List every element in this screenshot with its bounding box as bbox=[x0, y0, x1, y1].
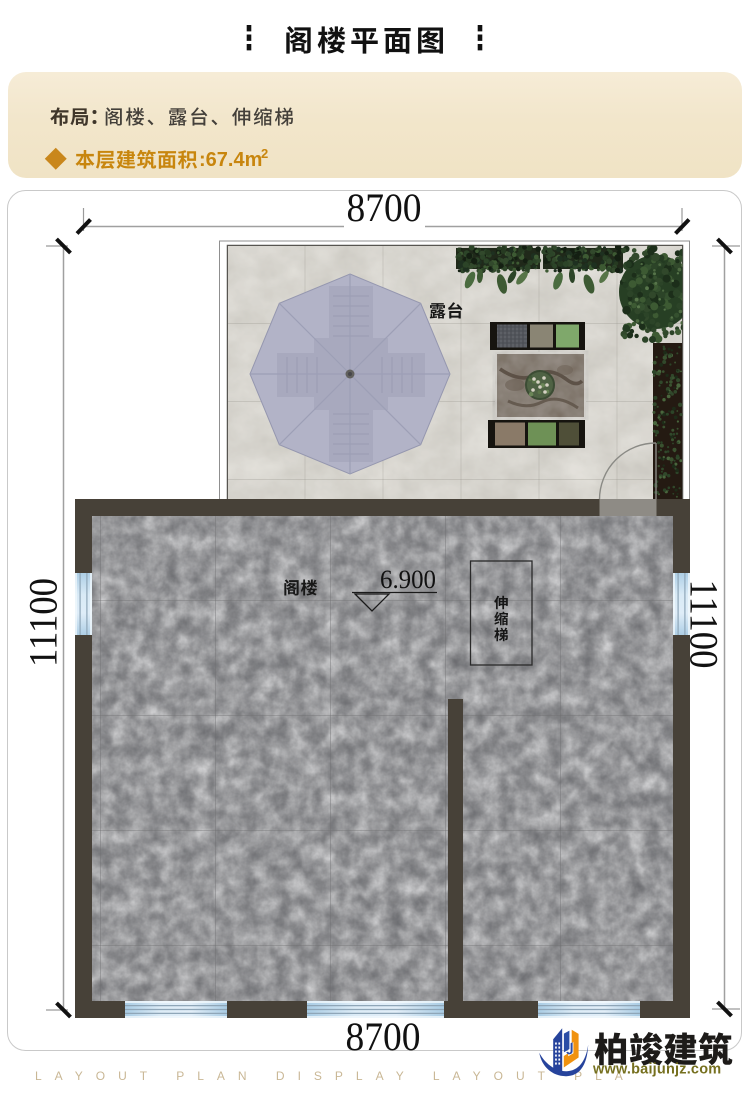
svg-text:LAYOUT PLAN DISPLAY LAYOUT PLA: LAYOUT PLAN DISPLAY LAYOUT PLA bbox=[35, 1069, 636, 1083]
svg-text:8700: 8700 bbox=[347, 185, 422, 230]
svg-text:6.900: 6.900 bbox=[380, 565, 436, 594]
svg-text:www.baijunjz.com: www.baijunjz.com bbox=[592, 1062, 721, 1078]
svg-text::67.4m: :67.4m bbox=[199, 149, 262, 171]
svg-text:11100: 11100 bbox=[21, 578, 66, 667]
svg-text:2: 2 bbox=[261, 146, 268, 161]
svg-text:8700: 8700 bbox=[346, 1014, 421, 1059]
